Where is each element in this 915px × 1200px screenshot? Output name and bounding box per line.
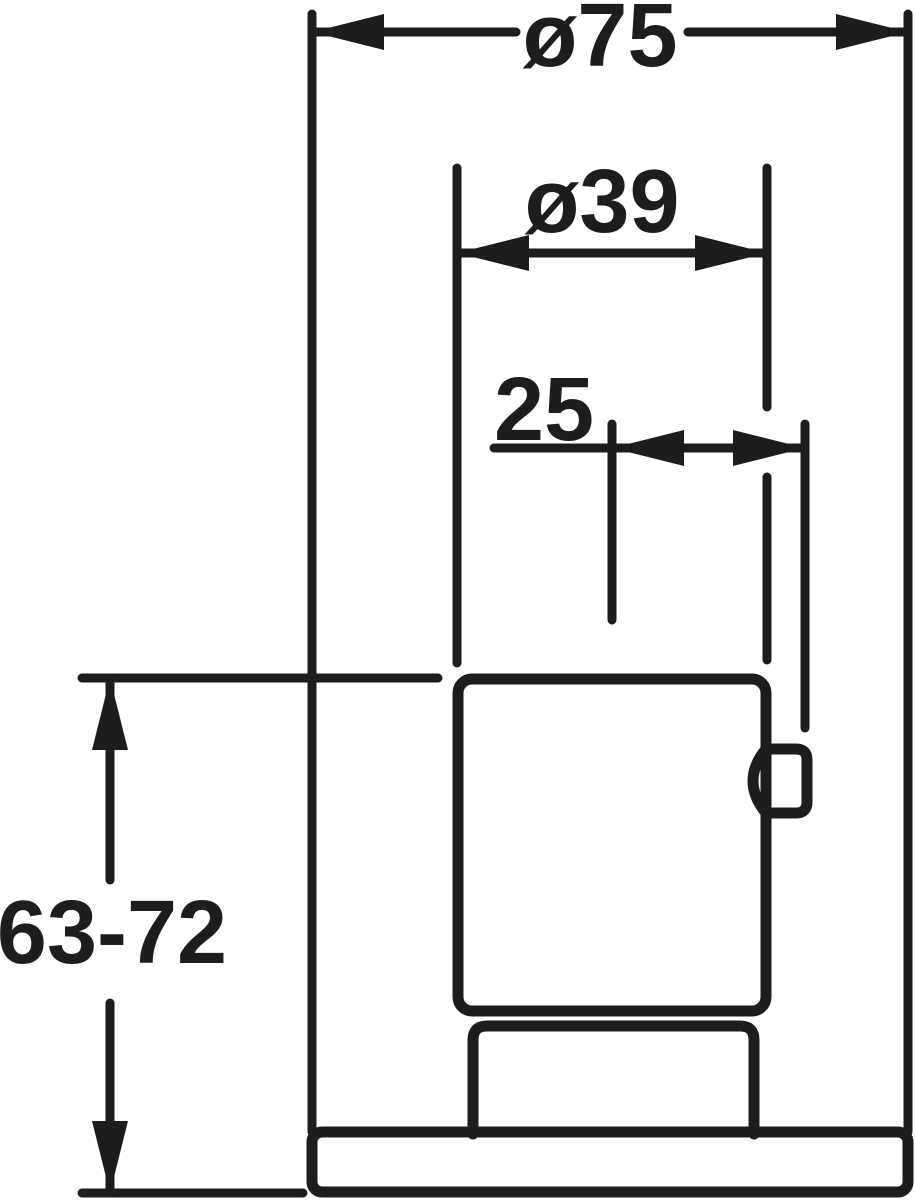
dim63-72-label: 63-72 bbox=[0, 883, 227, 983]
dia39-arrowhead-left bbox=[457, 235, 529, 271]
base-plate-outline bbox=[312, 1132, 908, 1192]
dim63-72-arrowhead-top bbox=[92, 678, 128, 750]
dimension-dia39: ø39 bbox=[457, 152, 767, 271]
valve-body-outline bbox=[458, 679, 766, 1011]
drawing-canvas: ø75 ø39 25 63-72 bbox=[0, 0, 915, 1200]
dimension-63-72: 63-72 bbox=[0, 678, 227, 1193]
dia39-arrowhead-right bbox=[695, 235, 767, 271]
dim25-arrowhead-right bbox=[733, 430, 805, 466]
dim63-72-arrowhead-bottom bbox=[92, 1121, 128, 1193]
technical-drawing: ø75 ø39 25 63-72 bbox=[0, 0, 915, 1200]
dia75-arrowhead-right bbox=[836, 14, 908, 50]
dia75-arrowhead-left bbox=[312, 14, 384, 50]
part-outline bbox=[312, 679, 908, 1192]
dimension-dia75: ø75 bbox=[312, 0, 908, 86]
dia75-label: ø75 bbox=[522, 0, 677, 86]
dimension-25: 25 bbox=[494, 360, 805, 466]
dim25-label: 25 bbox=[494, 360, 594, 460]
base-neck-outline bbox=[473, 1026, 754, 1134]
dim25-arrowhead-left bbox=[612, 430, 684, 466]
dia39-label: ø39 bbox=[524, 152, 679, 252]
